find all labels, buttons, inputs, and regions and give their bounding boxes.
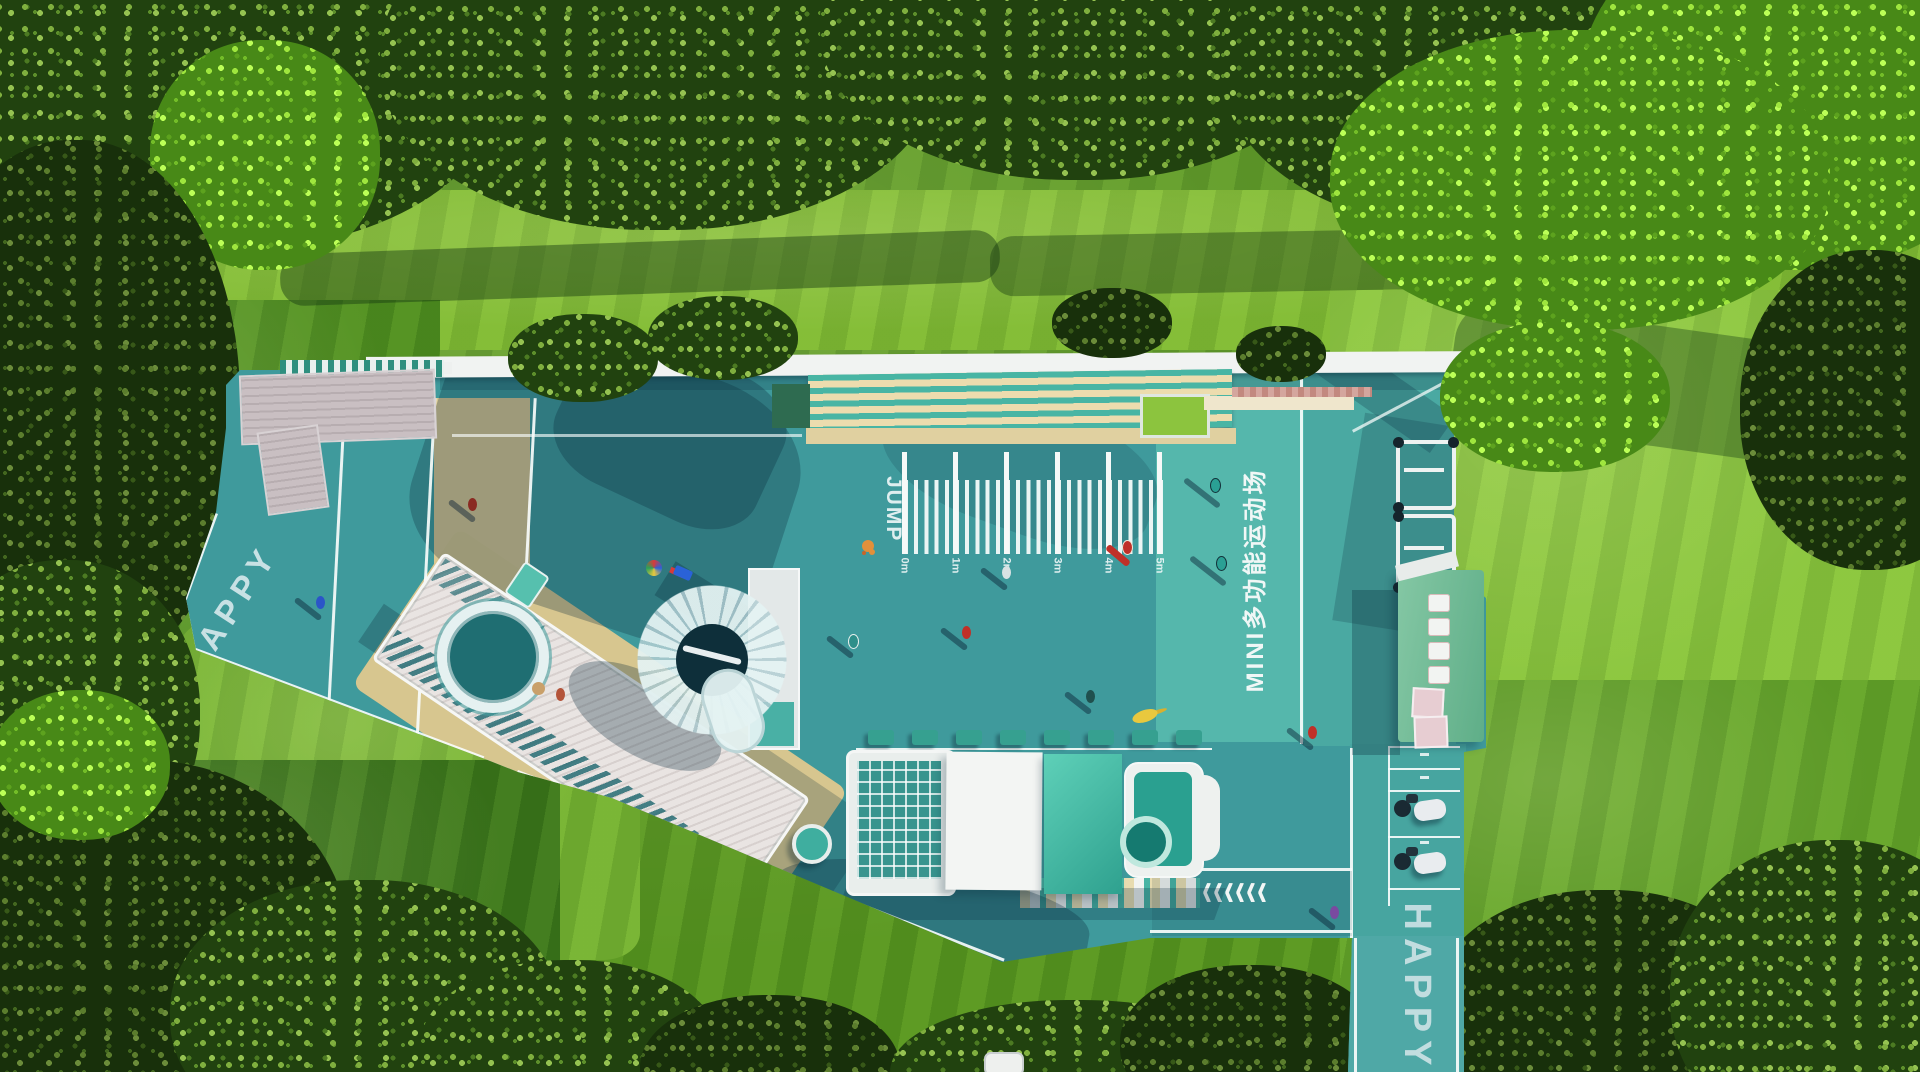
pinwheel-toy bbox=[646, 560, 662, 576]
train-canopy-white bbox=[945, 752, 1042, 891]
person-figure bbox=[468, 498, 477, 511]
picnic-table bbox=[1411, 687, 1445, 719]
overhang-foliage bbox=[1440, 322, 1670, 472]
cream-ledge bbox=[1204, 396, 1354, 410]
train-car-frame bbox=[846, 750, 956, 896]
person-figure bbox=[1308, 726, 1317, 739]
ruler-tick-label: 5m bbox=[1154, 554, 1165, 578]
overhang-foliage bbox=[1052, 288, 1172, 358]
ruler-major-bar: 3m bbox=[1055, 452, 1060, 554]
bike-body bbox=[1413, 798, 1447, 822]
train-car-net bbox=[857, 761, 941, 879]
ruler-major-bar: 4m bbox=[1106, 452, 1111, 554]
kiosk bbox=[1394, 556, 1490, 748]
sun-hat bbox=[532, 682, 545, 695]
chevron-band-line bbox=[1150, 930, 1352, 933]
bush-cluster bbox=[0, 690, 170, 840]
overhang-foliage bbox=[1236, 326, 1326, 382]
climbing-ring bbox=[437, 601, 549, 713]
person-figure bbox=[962, 626, 971, 639]
exercise-bike bbox=[1394, 792, 1454, 826]
overhang-foliage bbox=[508, 314, 658, 402]
path-line bbox=[1354, 938, 1357, 1072]
court-name-divider bbox=[1300, 366, 1303, 744]
kiosk-shadow bbox=[1352, 590, 1400, 755]
fish-toy bbox=[1131, 706, 1159, 725]
person-figure bbox=[1210, 478, 1221, 493]
picnic-table bbox=[1413, 715, 1448, 748]
happy-path-label-bottom: HAPPY bbox=[1392, 896, 1436, 1072]
court-divider-line bbox=[452, 434, 802, 437]
lane-mark bbox=[1420, 776, 1429, 779]
planter-box bbox=[912, 730, 938, 745]
bike-body bbox=[1413, 851, 1447, 875]
bike-lane-line bbox=[1388, 888, 1460, 890]
kiosk-sign-block bbox=[1428, 666, 1450, 684]
person-figure bbox=[1122, 540, 1133, 555]
person-figure bbox=[1330, 906, 1339, 919]
court-name-label: MINI多功能运动场 bbox=[1244, 450, 1280, 710]
planter-box bbox=[868, 730, 894, 745]
frame-bar bbox=[1404, 468, 1444, 472]
person-figure bbox=[1086, 690, 1095, 703]
ruler-tick-label: 1m bbox=[950, 554, 961, 578]
wood-deck-arm bbox=[256, 424, 329, 516]
frame-foot bbox=[1393, 437, 1404, 448]
bike-lane-line bbox=[1388, 836, 1460, 838]
ruler-major-bar: 2m bbox=[1004, 452, 1009, 554]
person-figure bbox=[556, 688, 565, 701]
bottom-edge-object bbox=[984, 1052, 1024, 1072]
person-figure bbox=[316, 596, 325, 609]
train-canopy-teal bbox=[1044, 754, 1122, 894]
planter-box bbox=[956, 730, 982, 745]
planter-box bbox=[1088, 730, 1114, 745]
kiosk-sign-block bbox=[1428, 618, 1450, 636]
frame-bar bbox=[1404, 546, 1444, 550]
locomotive-chimney bbox=[1120, 816, 1172, 868]
bike-handlebar bbox=[1406, 847, 1418, 856]
jump-figure-icon bbox=[862, 540, 874, 552]
lane-mark bbox=[1420, 753, 1429, 756]
ruler-major-bar: 5m bbox=[1157, 452, 1162, 554]
tree-canopy bbox=[1330, 30, 1830, 330]
ruler-tick-label: 0m bbox=[899, 554, 910, 578]
flower-strip bbox=[1232, 387, 1372, 397]
ruler-tick-label: 4m bbox=[1103, 554, 1114, 578]
bike-lane-line bbox=[1388, 746, 1390, 906]
ruler-major-bar: 1m bbox=[953, 452, 958, 554]
aerial-playground-render: ‹‹‹‹‹‹ 0m 1m 2m 3m 4m 5m bbox=[0, 0, 1920, 1072]
bike-lane-line bbox=[1388, 768, 1460, 770]
ruler-tick-label: 3m bbox=[1052, 554, 1063, 578]
fitness-frame bbox=[1396, 440, 1456, 510]
planter-box bbox=[1000, 730, 1026, 745]
jump-label: JUMP bbox=[878, 476, 904, 530]
path-line bbox=[1456, 938, 1459, 1072]
exercise-bike bbox=[1394, 845, 1454, 879]
overhang-foliage bbox=[648, 296, 798, 380]
person-figure bbox=[1002, 566, 1011, 579]
round-table bbox=[792, 824, 832, 864]
jump-ruler: 0m 1m 2m 3m 4m 5m bbox=[902, 452, 1168, 590]
planter-box bbox=[1044, 730, 1070, 745]
grass-planter bbox=[1140, 394, 1210, 438]
frame-foot bbox=[1393, 511, 1404, 522]
kiosk-sign-block bbox=[1428, 642, 1450, 660]
planter-box bbox=[1132, 730, 1158, 745]
bike-handlebar bbox=[1406, 794, 1418, 803]
locomotive-front bbox=[1196, 775, 1220, 861]
planter-box bbox=[1176, 730, 1202, 745]
lane-mark bbox=[1420, 841, 1429, 844]
person-figure bbox=[1216, 556, 1227, 571]
canopy-end-block bbox=[772, 384, 810, 428]
kiosk-sign-block bbox=[1428, 594, 1450, 612]
person-figure bbox=[848, 634, 859, 649]
